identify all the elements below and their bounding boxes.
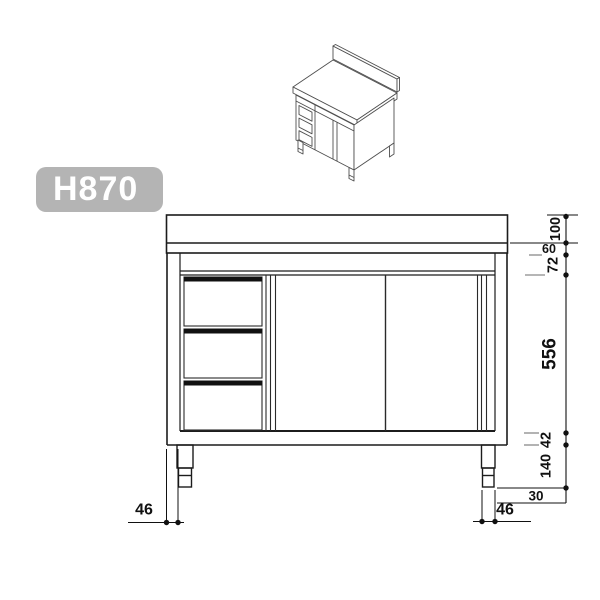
legs	[177, 445, 495, 487]
iso-leg-back-right	[390, 143, 395, 157]
dimension-lines	[128, 215, 578, 524]
dim-plinth-height: 42	[539, 432, 555, 448]
iso-leg-front-left	[298, 140, 303, 154]
dim-worktop-thickness: 60	[542, 242, 556, 256]
isometric-thumbnail	[293, 45, 400, 182]
dim-upstand-height: 100	[548, 217, 564, 241]
drawing-canvas: 100 60 72 556 42 140 30 46 46	[0, 0, 600, 600]
front-view	[167, 215, 508, 487]
dim-foot-inset: 30	[528, 489, 543, 504]
technical-drawing-page: H870	[0, 0, 600, 600]
dim-top-rail-height: 72	[546, 257, 562, 273]
iso-upstand-cap	[397, 78, 400, 93]
dimension-annotations: 100 60 72 556 42 140 30 46 46	[128, 214, 578, 525]
dimension-dots	[164, 214, 569, 525]
dim-door-opening-height: 556	[540, 338, 561, 370]
dim-leg-width-right: 46	[496, 502, 514, 519]
dimension-labels: 100 60 72 556 42 140 30 46 46	[135, 217, 564, 519]
drawer-stack	[184, 277, 262, 430]
iso-leg-front-right	[349, 168, 354, 182]
dim-leg-width-left: 46	[135, 502, 153, 519]
sliding-doors	[266, 275, 487, 431]
dim-leg-height: 140	[539, 454, 555, 478]
